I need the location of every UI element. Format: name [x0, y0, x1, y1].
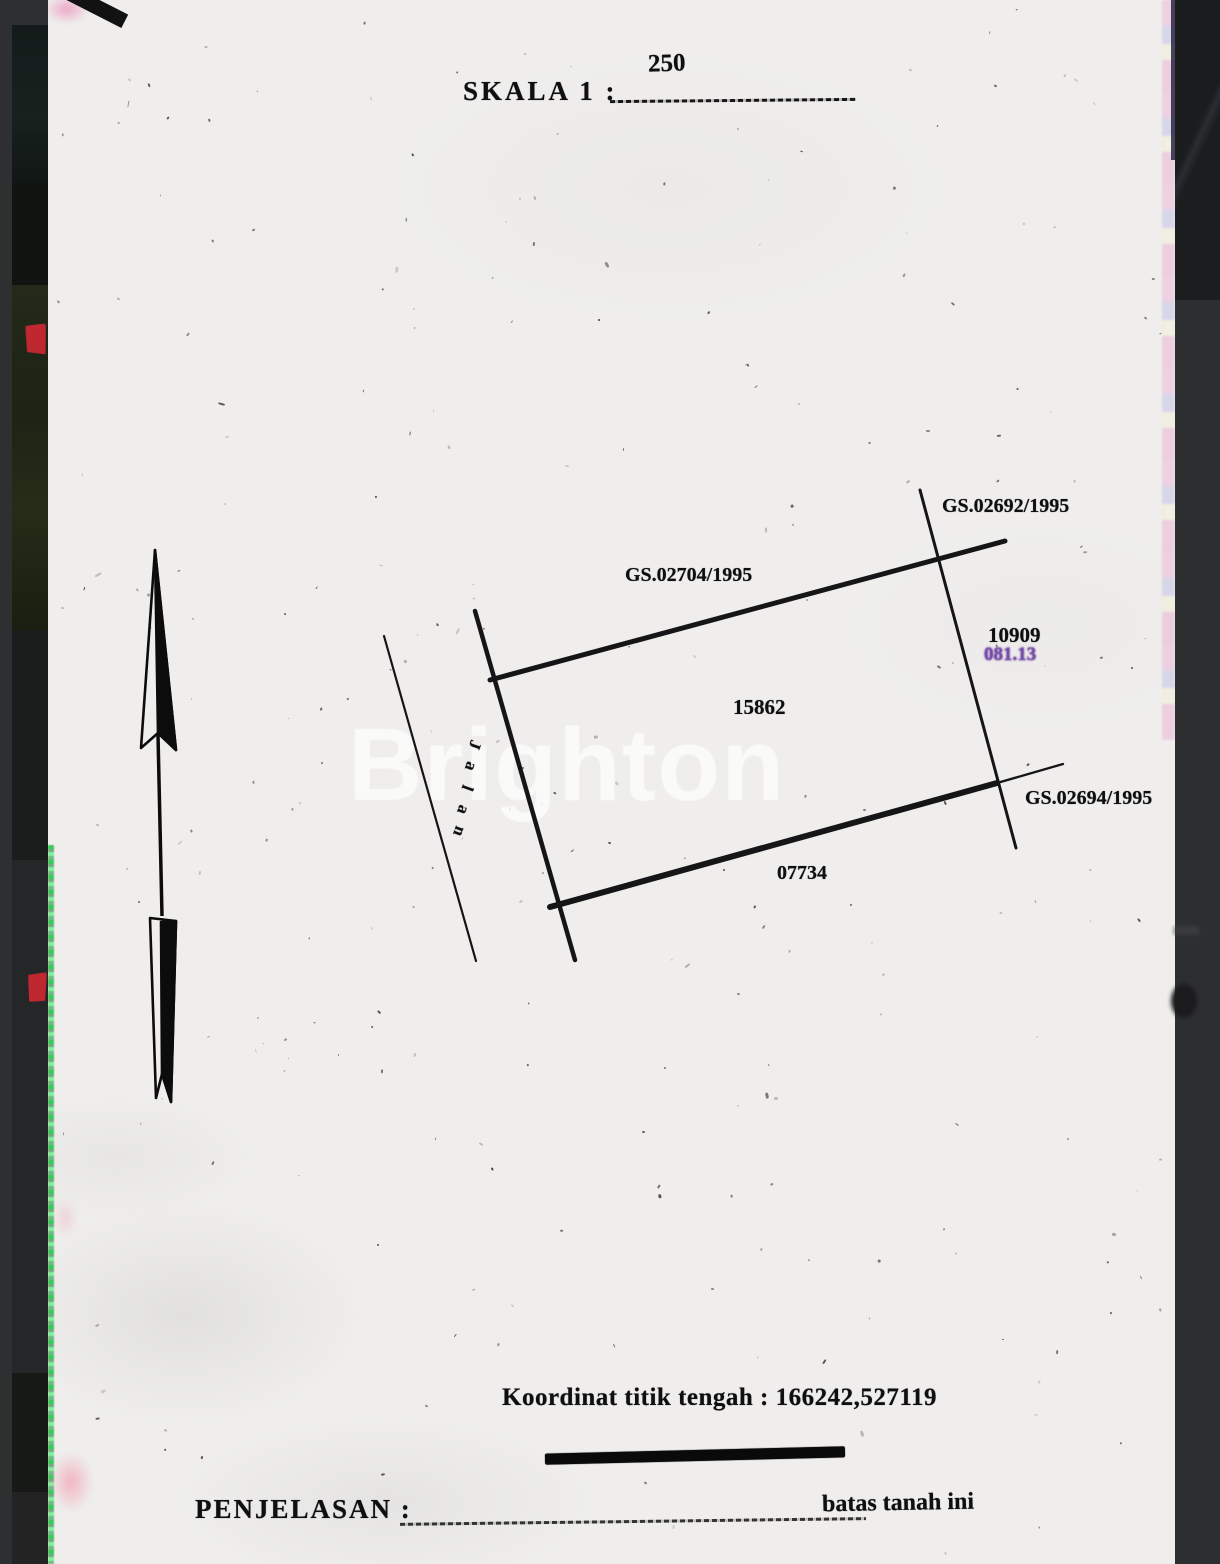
noise-speckle — [314, 1022, 316, 1024]
noise-speckle — [309, 937, 311, 940]
thumbnail-fragment[interactable] — [12, 1492, 48, 1564]
noise-speckle — [905, 232, 907, 234]
noise-speckle — [863, 809, 866, 811]
legend-boundary-symbol — [545, 1446, 845, 1464]
noise-speckle — [1144, 638, 1146, 639]
noise-speckle — [1144, 317, 1148, 321]
noise-speckle — [207, 1036, 210, 1039]
noise-speckle — [1088, 868, 1091, 871]
noise-speckle — [434, 1137, 437, 1140]
noise-speckle — [759, 244, 761, 246]
noise-speckle — [96, 1417, 100, 1419]
noise-speckle — [1110, 1312, 1112, 1314]
noise-speckle — [664, 1067, 666, 1069]
noise-speckle — [406, 218, 408, 222]
watermark: Brighton — [348, 706, 785, 824]
noise-speckle — [320, 707, 322, 710]
noise-speckle — [1002, 1339, 1004, 1340]
parcel-east-boundary — [920, 490, 1016, 848]
noise-speckle — [1137, 918, 1141, 922]
noise-speckle — [869, 442, 871, 444]
noise-speckle — [753, 905, 756, 909]
noise-speckle — [347, 698, 349, 700]
noise-speckle — [218, 402, 225, 406]
noise-speckle — [504, 221, 507, 223]
noise-speckle — [478, 1142, 482, 1146]
noise-speckle — [1034, 900, 1036, 903]
scale-label: SKALA 1 : — [463, 76, 618, 107]
noise-speckle — [165, 116, 169, 120]
boundary-label-southeast: GS.02694/1995 — [1025, 787, 1152, 810]
noise-speckle — [952, 662, 955, 665]
thumbnail-fragment[interactable] — [12, 1373, 48, 1492]
noise-speckle — [362, 389, 364, 392]
thumbnail-fragment[interactable] — [12, 630, 48, 860]
center-coordinate-text: Koordinat titik tengah : 166242,527119 — [502, 1384, 937, 1412]
noise-speckle — [527, 1064, 530, 1067]
noise-speckle — [943, 800, 947, 805]
noise-speckle — [82, 473, 83, 476]
noise-speckle — [413, 906, 415, 908]
noise-speckle — [128, 78, 132, 82]
noise-speckle — [425, 1404, 429, 1407]
noise-speckle — [868, 1317, 870, 1320]
noise-speckle — [774, 1096, 778, 1099]
noise-speckle — [906, 480, 910, 484]
noise-speckle — [556, 133, 559, 135]
noise-speckle — [760, 1248, 763, 1251]
legend-item-text: batas tanah ini — [822, 1489, 975, 1519]
noise-speckle — [791, 504, 795, 508]
survey-document-page: Brighton SKALA 1 : 250 — [48, 0, 1175, 1564]
noise-speckle — [807, 1259, 810, 1260]
noise-speckle — [642, 1131, 646, 1134]
noise-speckle — [1159, 1308, 1161, 1311]
noise-speckle — [371, 1026, 374, 1029]
noise-speckle — [1067, 1138, 1069, 1141]
noise-speckle — [208, 119, 211, 122]
noise-speckle — [1063, 74, 1066, 78]
noise-speckle — [199, 871, 201, 875]
noise-speckle — [524, 53, 527, 56]
noise-speckle — [850, 903, 852, 906]
noise-speckle — [127, 100, 129, 107]
noise-speckle — [1017, 388, 1019, 390]
noise-speckle — [1056, 1350, 1059, 1354]
noise-speckle — [519, 198, 521, 200]
parcel-south-boundary-extension — [997, 764, 1063, 783]
thumbnail-text-fragment — [1173, 926, 1199, 935]
noise-speckle — [381, 1473, 385, 1476]
noise-speckle — [150, 626, 152, 629]
noise-speckle — [1000, 912, 1003, 914]
noise-speckle — [411, 153, 414, 157]
noise-speckle — [1100, 657, 1103, 660]
noise-speckle — [138, 901, 141, 903]
noise-speckle — [956, 1123, 960, 1126]
noise-speckle — [766, 528, 768, 533]
north-arrow-icon — [141, 550, 176, 1102]
noise-speckle — [1137, 1190, 1139, 1192]
noise-speckle — [1140, 1276, 1143, 1280]
noise-speckle — [257, 1016, 259, 1018]
noise-speckle — [765, 1092, 769, 1098]
noise-speckle — [147, 83, 150, 87]
noise-speckle — [1074, 78, 1078, 82]
noise-speckle — [211, 239, 215, 243]
noise-speckle — [126, 868, 129, 870]
noise-speckle — [297, 1175, 299, 1177]
boundary-label-north: GS.02704/1995 — [625, 564, 752, 587]
noise-speckle — [672, 1525, 674, 1529]
noise-speckle — [287, 718, 289, 720]
noise-speckle — [908, 69, 911, 72]
noise-speckle — [370, 927, 373, 930]
noise-speckle — [201, 1456, 203, 1459]
noise-speckle — [882, 973, 885, 976]
noise-speckle — [822, 1359, 826, 1364]
noise-speckle — [375, 495, 377, 498]
parcel-number-east-bottom: 081.13 — [984, 644, 1036, 666]
noise-speckle — [944, 1552, 947, 1555]
noise-speckle — [57, 300, 60, 303]
scan-artifact — [52, 1198, 78, 1238]
noise-speckle — [757, 1356, 759, 1359]
noise-speckle — [926, 430, 930, 432]
legend-underline — [400, 1517, 866, 1526]
brand-logo-fragment — [25, 323, 48, 355]
noise-speckle — [1093, 102, 1097, 106]
image-viewer: Brighton SKALA 1 : 250 — [0, 0, 1220, 1564]
noise-speckle — [623, 448, 624, 451]
noise-speckle — [1027, 763, 1030, 766]
left-thumbnail-strip[interactable] — [0, 0, 48, 1564]
noise-speckle — [995, 479, 999, 483]
right-thumbnail-strip[interactable] — [1175, 0, 1220, 1564]
noise-speckle — [730, 1195, 734, 1199]
noise-speckle — [381, 288, 384, 291]
noise-speckle — [560, 1230, 563, 1232]
noise-speckle — [1158, 1159, 1161, 1161]
noise-speckle — [376, 1010, 380, 1014]
noise-speckle — [455, 628, 460, 635]
noise-speckle — [1083, 551, 1087, 553]
brand-logo-fragment — [28, 972, 47, 1002]
noise-speckle — [291, 808, 294, 811]
thumbnail-fragment[interactable] — [12, 25, 48, 185]
noise-speckle — [190, 830, 193, 833]
noise-speckle — [628, 645, 630, 647]
noise-speckle — [533, 242, 535, 246]
noise-speckle — [265, 838, 268, 842]
noise-speckle — [252, 229, 256, 232]
noise-speckle — [806, 599, 808, 602]
noise-speckle — [860, 1430, 865, 1436]
thumbnail-fragment[interactable] — [12, 185, 48, 285]
noise-speckle — [880, 1013, 882, 1015]
noise-speckle — [604, 261, 609, 267]
noise-speckle — [657, 1184, 661, 1188]
noise-speckle — [191, 618, 193, 620]
noise-speckle — [413, 308, 415, 310]
noise-speckle — [645, 879, 647, 883]
noise-speckle — [1053, 226, 1055, 227]
noise-speckle — [754, 385, 758, 388]
noise-speckle — [1036, 1036, 1038, 1038]
noise-speckle — [186, 332, 190, 336]
noise-speckle — [877, 1260, 880, 1263]
noise-speckle — [1080, 545, 1083, 548]
boundary-label-northeast: GS.02692/1995 — [942, 495, 1069, 518]
thumbnail-fragment[interactable] — [1175, 0, 1220, 300]
noise-speckle — [723, 869, 725, 871]
noise-speckle — [664, 182, 666, 185]
noise-speckle — [177, 570, 181, 572]
noise-speckle — [670, 959, 672, 961]
noise-speckle — [565, 464, 569, 467]
noise-speckle — [161, 1098, 163, 1100]
noise-speckle — [570, 66, 572, 68]
noise-speckle — [284, 1039, 287, 1042]
noise-speckle — [770, 1183, 773, 1186]
noise-speckle — [519, 900, 523, 904]
noise-speckle — [337, 1053, 339, 1056]
noise-speckle — [255, 1049, 257, 1053]
noise-speckle — [534, 196, 537, 200]
noise-speckle — [205, 46, 208, 49]
noise-speckle — [511, 1304, 513, 1307]
noise-speckle — [315, 587, 318, 590]
noise-speckle — [644, 1482, 648, 1485]
scale-value: 250 — [648, 49, 686, 78]
noise-speckle — [943, 1228, 946, 1231]
noise-speckle — [1090, 920, 1091, 922]
noise-speckle — [492, 277, 494, 279]
noise-speckle — [363, 22, 366, 25]
noise-speckle — [1112, 1233, 1117, 1237]
noise-speckle — [436, 623, 439, 627]
noise-speckle — [1152, 278, 1155, 280]
noise-speckle — [936, 125, 938, 127]
noise-speckle — [403, 660, 407, 664]
noise-speckle — [737, 128, 740, 130]
noise-speckle — [1022, 223, 1025, 226]
noise-speckle — [62, 1133, 63, 1136]
noise-speckle — [431, 867, 433, 869]
noise-speckle — [447, 445, 451, 449]
thumbnail-fragment[interactable] — [12, 860, 48, 1373]
noise-speckle — [1044, 665, 1046, 668]
noise-speckle — [1131, 667, 1134, 670]
scan-edge-noise — [48, 845, 54, 1564]
noise-speckle — [95, 573, 102, 578]
noise-speckle — [299, 802, 302, 805]
noise-speckle — [377, 1244, 379, 1246]
parcel-number-center: 15862 — [733, 695, 786, 720]
noise-speckle — [414, 1053, 417, 1057]
noise-speckle — [225, 436, 229, 438]
noise-speckle — [472, 1288, 475, 1291]
noise-speckle — [164, 1429, 167, 1431]
noise-speckle — [100, 1389, 105, 1394]
noise-speckle — [320, 762, 323, 765]
noise-speckle — [892, 186, 896, 190]
noise-speckle — [223, 503, 225, 505]
noise-speckle — [951, 302, 955, 306]
scale-underline — [610, 98, 856, 103]
noise-speckle — [612, 1343, 615, 1347]
noise-speckle — [542, 871, 545, 874]
noise-speckle — [1039, 1527, 1041, 1529]
noise-speckle — [804, 795, 807, 799]
noise-speckle — [598, 319, 600, 321]
parcel-north-boundary — [490, 541, 1005, 680]
noise-speckle — [389, 670, 391, 672]
noise-speckle — [256, 90, 258, 93]
noise-speckle — [262, 1042, 264, 1044]
noise-speckle — [994, 85, 998, 88]
noise-speckle — [527, 1002, 529, 1004]
noise-speckle — [283, 1070, 285, 1072]
noise-speckle — [287, 1057, 289, 1060]
parcel-number-south: 07734 — [777, 862, 827, 885]
noise-speckle — [1016, 9, 1018, 10]
noise-speckle — [497, 1343, 500, 1347]
noise-speckle — [61, 607, 64, 609]
scan-artifact — [49, 1452, 93, 1512]
noise-speckle — [800, 151, 804, 153]
noise-speckle — [117, 298, 121, 301]
noise-speckle — [211, 1161, 214, 1165]
noise-speckle — [380, 1069, 383, 1073]
noise-speckle — [788, 949, 791, 953]
noise-speckle — [191, 698, 192, 700]
noise-speckle — [95, 1324, 100, 1327]
noise-speckle — [902, 273, 906, 277]
noise-speckle — [409, 431, 411, 435]
noise-speckle — [658, 1194, 661, 1198]
noise-speckle — [762, 925, 766, 929]
noise-speckle — [737, 992, 740, 994]
road-label-letter: n — [446, 819, 473, 843]
noise-speckle — [792, 523, 795, 526]
noise-speckle — [955, 1253, 958, 1256]
noise-speckle — [159, 194, 161, 196]
noise-speckle — [177, 841, 182, 846]
noise-speckle — [989, 31, 991, 34]
noise-speckle — [164, 1448, 166, 1451]
noise-speckle — [1038, 1380, 1041, 1383]
noise-speckle — [1106, 1261, 1109, 1264]
noise-speckle — [395, 266, 398, 272]
noise-speckle — [707, 311, 710, 315]
noise-speckle — [797, 403, 799, 405]
noise-speckle — [1049, 411, 1052, 413]
noise-speckle — [473, 598, 475, 600]
noise-speckle — [491, 1168, 494, 1171]
noise-speckle — [414, 327, 416, 330]
noise-speckle — [456, 71, 459, 74]
noise-speckle — [136, 588, 139, 591]
noise-speckle — [1033, 1414, 1037, 1417]
noise-speckle — [736, 1105, 738, 1107]
noise-speckle — [997, 434, 1001, 436]
noise-speckle — [83, 587, 86, 591]
noise-speckle — [1120, 1441, 1123, 1444]
noise-speckle — [141, 1123, 142, 1125]
noise-speckle — [768, 1064, 770, 1066]
noise-speckle — [608, 842, 612, 845]
noise-speckle — [370, 96, 373, 100]
noise-speckle — [95, 824, 98, 827]
noise-speckle — [510, 320, 513, 323]
noise-speckle — [746, 364, 749, 367]
noise-speckle — [570, 849, 574, 853]
noise-speckle — [871, 942, 873, 944]
noise-speckle — [683, 857, 686, 859]
noise-speckle — [483, 627, 486, 630]
noise-speckle — [453, 1333, 456, 1337]
noise-speckle — [1073, 480, 1076, 484]
noise-speckle — [684, 963, 690, 968]
noise-speckle — [693, 655, 696, 658]
noise-speckle — [283, 613, 286, 616]
noise-speckle — [417, 635, 419, 636]
noise-speckle — [472, 584, 474, 586]
noise-speckle — [61, 133, 64, 137]
noise-speckle — [147, 593, 151, 597]
noise-speckle — [252, 781, 255, 784]
noise-speckle — [118, 121, 120, 123]
legend-label: PENJELASAN : — [195, 1494, 412, 1525]
noise-speckle — [433, 409, 435, 412]
thumbnail-fragment — [1171, 984, 1197, 1018]
noise-speckle — [379, 564, 383, 566]
noise-speckle — [937, 665, 941, 669]
noise-speckle — [767, 179, 769, 181]
noise-speckle — [711, 1288, 714, 1290]
